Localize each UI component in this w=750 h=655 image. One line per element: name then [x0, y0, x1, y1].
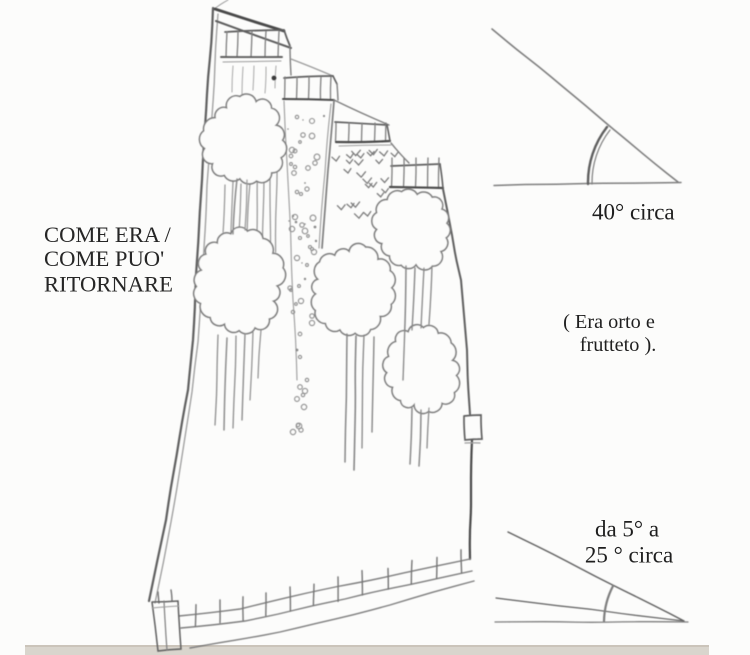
svg-text:( Era orto efrutteto ).: ( Era orto efrutteto ).	[563, 311, 656, 356]
svg-text:COME ERA /COME PUO'RITORNARE: COME ERA /COME PUO'RITORNARE	[44, 222, 173, 297]
svg-text:da 5° a25 ° circa: da 5° a25 ° circa	[585, 517, 673, 568]
svg-text:40° circa: 40° circa	[592, 200, 675, 225]
